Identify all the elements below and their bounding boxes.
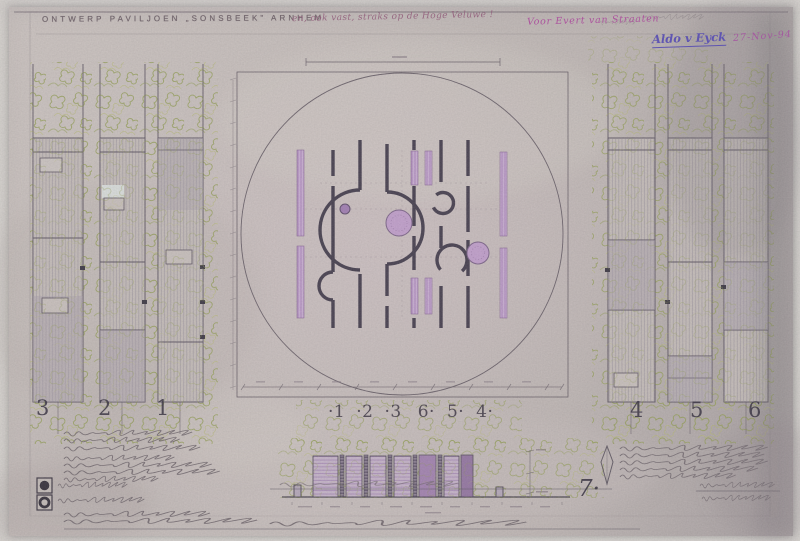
section-label-7: 7· [578,478,600,501]
plan-wall-numbers: ·1 ·2 ·3 6· 5· 4· [328,404,493,421]
elevation-label-4: 4 [630,400,643,421]
elevation-label-6: 6 [748,400,761,421]
elevation-label-3: 3 [36,398,49,419]
wall-number-4: 4· [476,404,493,421]
elevation-label-1: 1 [156,398,169,419]
architect-signature: Aldo v Eyck [652,32,727,48]
drawing-title: ONTWERP PAVILJOEN „SONSBEEK” ARNHEM [42,14,324,24]
elevation-label-2: 2 [98,398,111,419]
wall-number-1: ·1 [328,404,345,421]
wall-number-6: 6· [418,404,435,421]
wall-number-5: 5· [447,404,464,421]
scanned-drawing-sheet: ONTWERP PAVILJOEN „SONSBEEK” ARNHEM en, … [0,0,800,541]
drawing-linework [0,0,800,541]
paper-grain [0,0,800,541]
wall-number-2: ·2 [356,404,373,421]
wall-number-3: ·3 [384,404,401,421]
elevation-label-5: 5 [690,400,703,421]
